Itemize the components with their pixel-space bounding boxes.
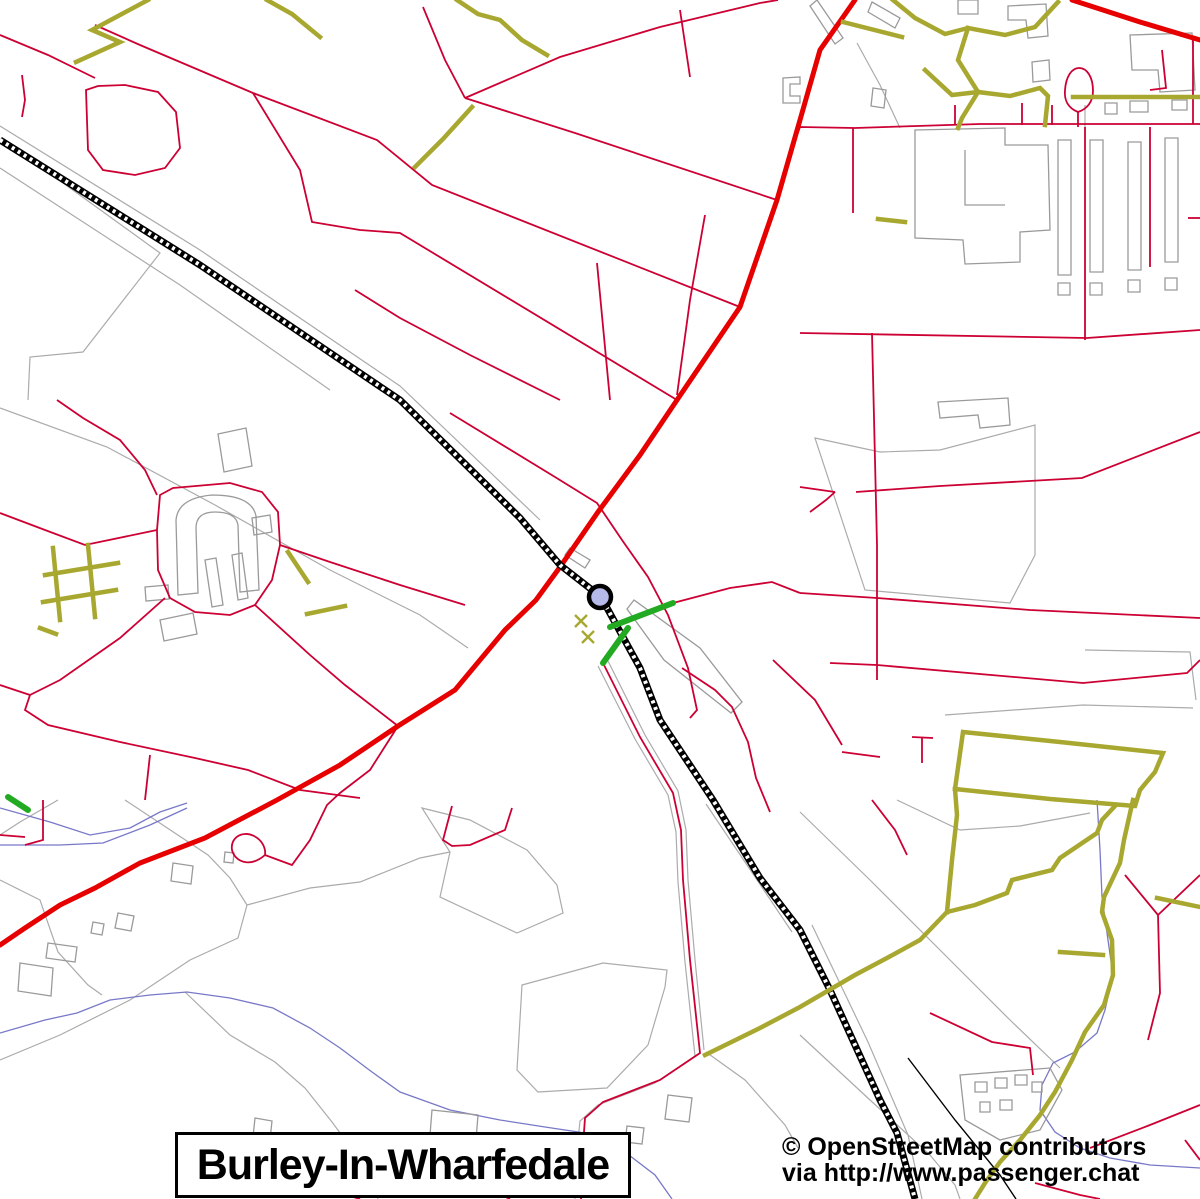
- horseshoe-building: [176, 495, 259, 595]
- buildings: [18, 0, 1195, 1144]
- main-road: [0, 0, 855, 945]
- map-canvas: [0, 0, 1200, 1199]
- map-title-box: Burley-In-Wharfedale: [175, 1132, 631, 1198]
- secondary-main-road: [1072, 0, 1200, 40]
- attribution: © OpenStreetMap contributors via http://…: [782, 1134, 1192, 1187]
- attribution-line2[interactable]: via http://www.passenger.chat: [782, 1160, 1192, 1186]
- crossing-mark: [575, 615, 587, 627]
- field-boundaries: [0, 43, 1196, 1199]
- attribution-line1: © OpenStreetMap contributors: [782, 1134, 1192, 1160]
- green-footpaths: [8, 603, 673, 810]
- crossing-mark: [582, 631, 594, 643]
- map-title: Burley-In-Wharfedale: [197, 1141, 609, 1190]
- station-marker[interactable]: [589, 586, 611, 608]
- map-view: Burley-In-Wharfedale © OpenStreetMap con…: [0, 0, 1200, 1199]
